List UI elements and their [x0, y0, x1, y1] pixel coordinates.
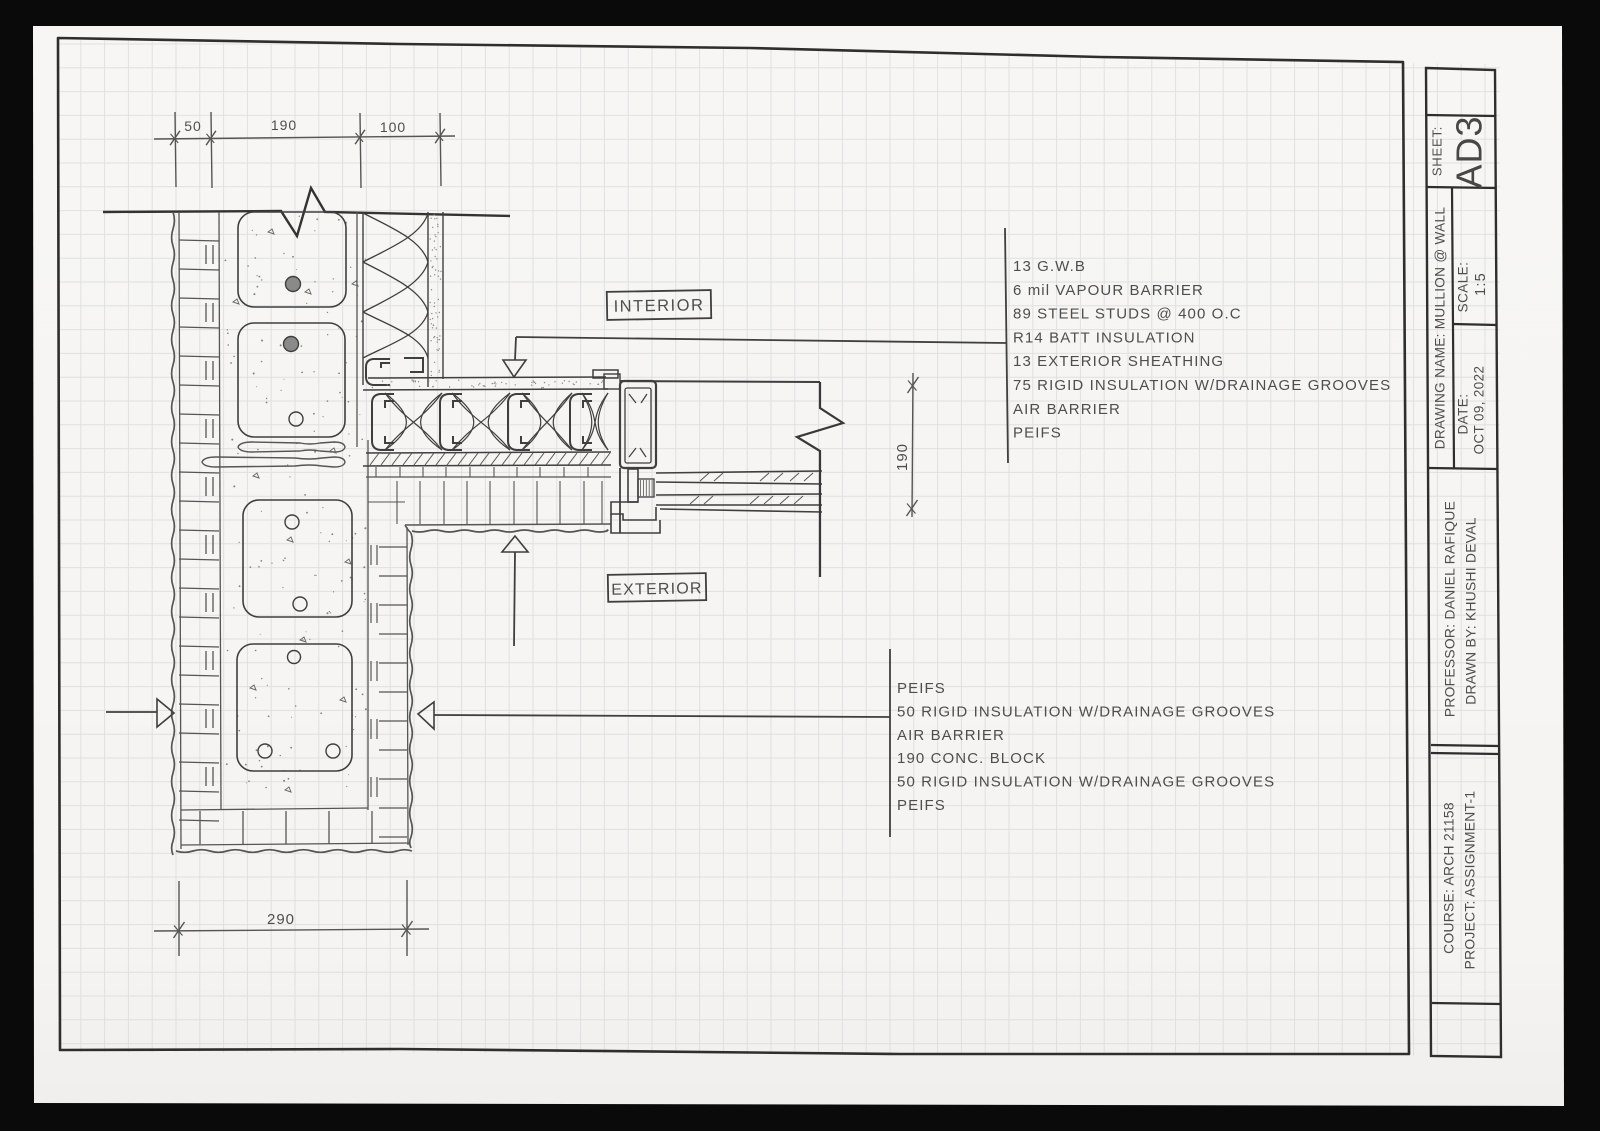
svg-text:SCALE:: SCALE: — [1456, 262, 1471, 313]
svg-text:PEIFS: PEIFS — [897, 680, 946, 697]
svg-text:AD3: AD3 — [1449, 115, 1490, 188]
svg-text:190 CONC. BLOCK: 190 CONC. BLOCK — [897, 750, 1046, 767]
svg-text:DRAWING NAME: MULLION @ WALL: DRAWING NAME: MULLION @ WALL — [1433, 207, 1448, 450]
svg-text:13 EXTERIOR SHEATHING: 13 EXTERIOR SHEATHING — [1013, 353, 1224, 370]
svg-text:AIR BARRIER: AIR BARRIER — [897, 727, 1005, 744]
svg-text:OCT 09, 2022: OCT 09, 2022 — [1472, 366, 1487, 455]
svg-text:50 RIGID INSULATION W/DRAIN: 50 RIGID INSULATION W/DRAINAGE GROOVES — [897, 774, 1275, 791]
svg-text:SHEET:: SHEET: — [1429, 126, 1444, 176]
svg-text:EXTERIOR: EXTERIOR — [611, 580, 703, 599]
svg-text:PROFESSOR: DANIEL RAFIQUE: PROFESSOR: DANIEL RAFIQUE — [1443, 501, 1458, 717]
svg-text:75 RIGID INSULATION W/DRAIN: 75 RIGID INSULATION W/DRAINAGE GROOVES — [1013, 377, 1391, 394]
svg-text:1:5: 1:5 — [1473, 272, 1489, 296]
svg-text:50: 50 — [184, 118, 202, 134]
svg-text:6 mil VAPOUR BARRIER: 6 mil VAPOUR BARRIER — [1013, 282, 1204, 299]
svg-text:DATE:: DATE: — [1456, 394, 1471, 435]
svg-text:DRAWN BY: KHUSHI DEVAL: DRAWN BY: KHUSHI DEVAL — [1464, 517, 1479, 705]
svg-text:PEIFS: PEIFS — [1013, 425, 1062, 442]
svg-text:R14 BATT INSULATION: R14 BATT INSULATION — [1013, 329, 1196, 346]
svg-text:COURSE: ARCH 21158: COURSE: ARCH 21158 — [1442, 802, 1457, 954]
svg-text:PEIFS: PEIFS — [897, 797, 946, 814]
svg-text:50 RIGID INSULATION W/DRAIN: 50 RIGID INSULATION W/DRAINAGE GROOVES — [897, 703, 1275, 720]
svg-text:100: 100 — [380, 119, 406, 135]
svg-text:190: 190 — [894, 443, 911, 471]
svg-text:290: 290 — [267, 911, 295, 928]
svg-text:190: 190 — [271, 117, 297, 133]
svg-text:AIR BARRIER: AIR BARRIER — [1013, 401, 1121, 418]
svg-text:PROJECT: ASSIGNMENT-1: PROJECT: ASSIGNMENT-1 — [1463, 791, 1478, 970]
svg-text:89 STEEL STUDS @ 400 O.C: 89 STEEL STUDS @ 400 O.C — [1013, 306, 1242, 323]
svg-text:INTERIOR: INTERIOR — [613, 296, 704, 316]
svg-text:13 G.W.B: 13 G.W.B — [1013, 258, 1086, 275]
